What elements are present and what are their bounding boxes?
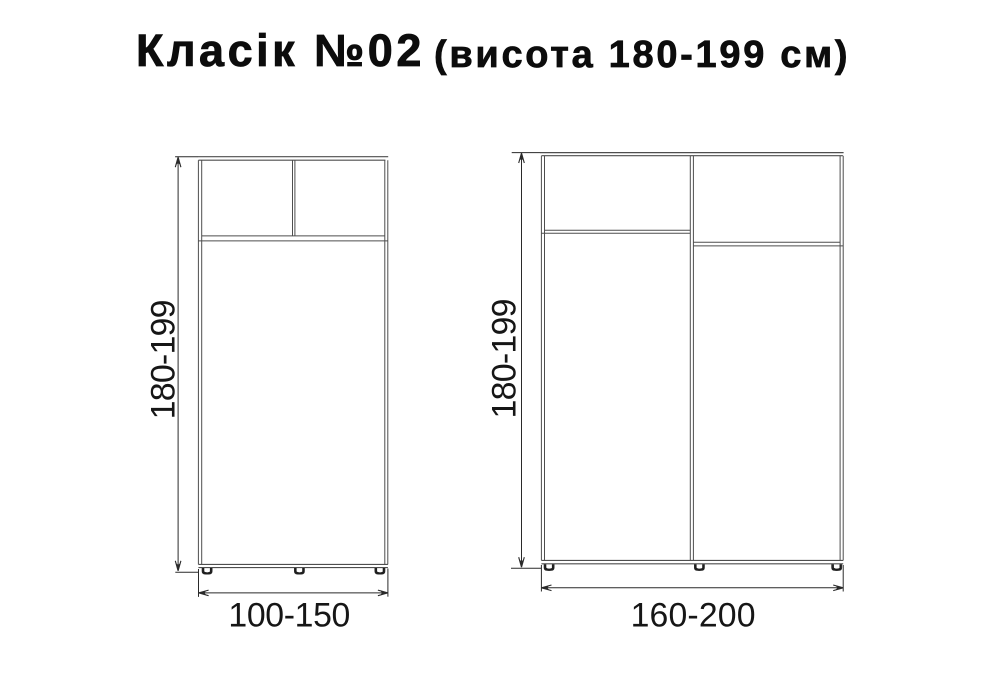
svg-text:100-150: 100-150 [228, 596, 350, 634]
svg-text:180-199: 180-199 [144, 300, 182, 419]
svg-text:180-199: 180-199 [485, 299, 523, 418]
svg-text:160-200: 160-200 [631, 596, 756, 634]
